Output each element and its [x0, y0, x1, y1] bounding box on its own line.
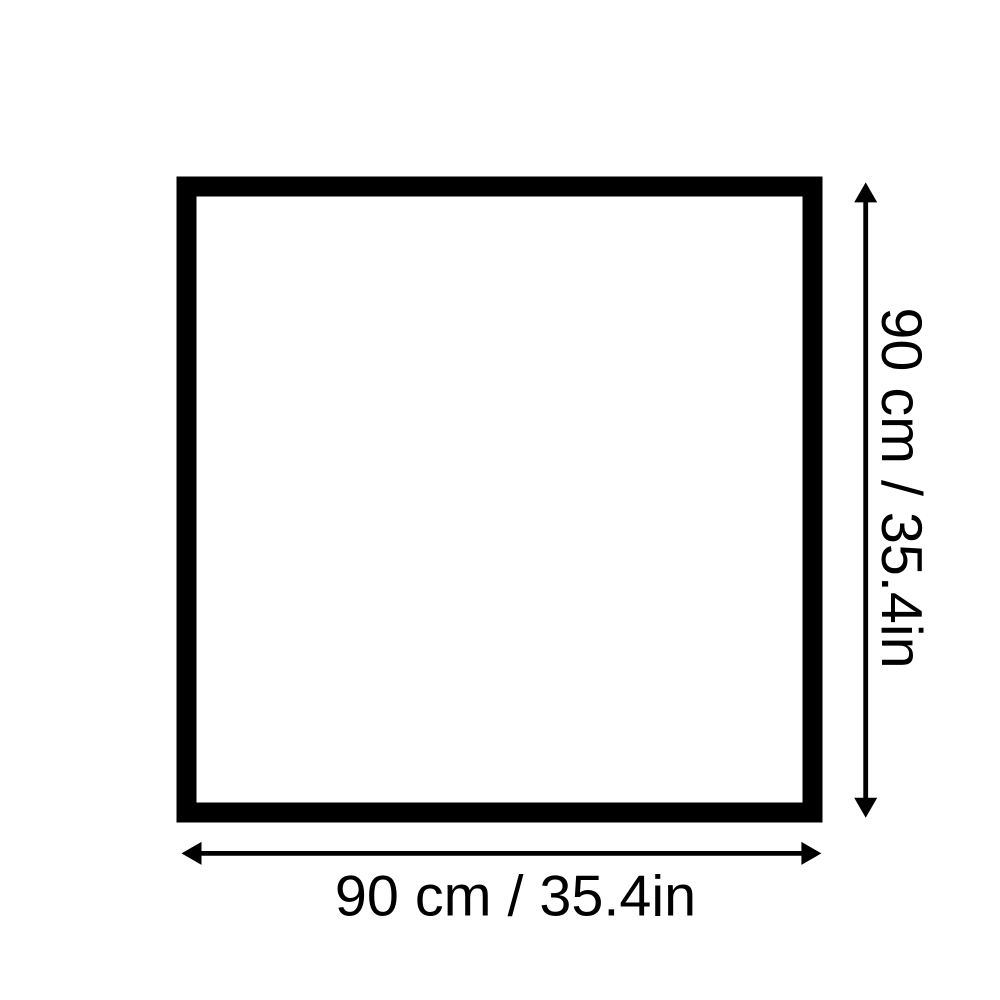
svg-text:90 cm / 35.4in: 90 cm / 35.4in — [335, 865, 696, 929]
svg-text:90 cm / 35.4in: 90 cm / 35.4in — [869, 307, 933, 668]
